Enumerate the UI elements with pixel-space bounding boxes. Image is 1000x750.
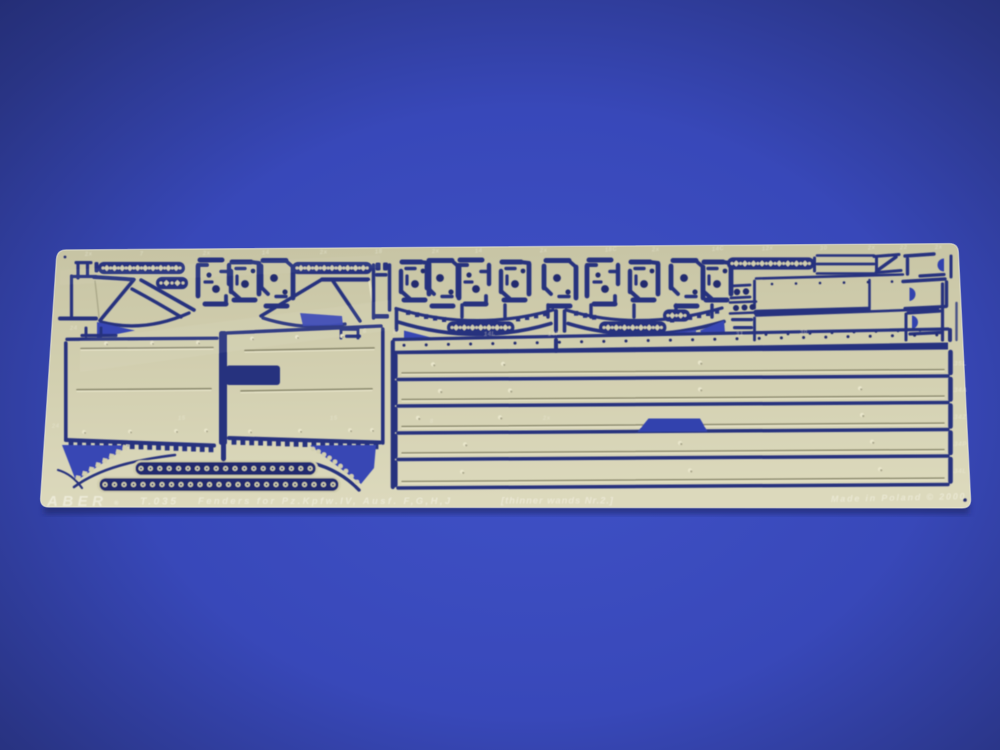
svg-text:34A: 34A bbox=[954, 387, 967, 394]
svg-text:2x: 2x bbox=[84, 251, 93, 258]
svg-text:2x: 2x bbox=[319, 249, 328, 256]
svg-text:34L: 34L bbox=[954, 468, 967, 475]
svg-text:2x: 2x bbox=[542, 415, 551, 422]
svg-text:24: 24 bbox=[51, 423, 60, 430]
svg-text:Fenders for Pz.Kpfw.IV, Ausf.: Fenders for Pz.Kpfw.IV, Ausf. F,G,H,J bbox=[198, 496, 453, 507]
svg-text:31: 31 bbox=[736, 331, 744, 338]
svg-text:15: 15 bbox=[178, 415, 186, 422]
svg-text:7: 7 bbox=[140, 251, 145, 257]
svg-text:24: 24 bbox=[69, 325, 78, 332]
svg-text:34Z: 34Z bbox=[954, 414, 967, 421]
svg-text:2x: 2x bbox=[539, 248, 548, 255]
svg-text:22: 22 bbox=[899, 245, 908, 252]
svg-text:14L: 14L bbox=[484, 331, 496, 338]
svg-text:2x: 2x bbox=[934, 244, 943, 251]
svg-text:14: 14 bbox=[475, 248, 483, 255]
svg-text:14: 14 bbox=[262, 250, 270, 257]
svg-text:ABER: ABER bbox=[46, 493, 108, 510]
svg-text:2x: 2x bbox=[867, 245, 876, 252]
svg-text:35L: 35L bbox=[954, 361, 967, 368]
svg-text:2x: 2x bbox=[431, 248, 440, 255]
svg-text:34P: 34P bbox=[954, 441, 967, 448]
svg-text:8: 8 bbox=[430, 419, 434, 425]
svg-text:15: 15 bbox=[330, 415, 338, 422]
svg-text:T.035: T.035 bbox=[140, 496, 179, 508]
svg-text:®: ® bbox=[114, 500, 119, 507]
svg-text:6x: 6x bbox=[393, 329, 401, 336]
svg-text:2x: 2x bbox=[651, 247, 660, 254]
svg-text:30: 30 bbox=[820, 245, 828, 252]
svg-text:14P: 14P bbox=[548, 331, 561, 338]
svg-text:18: 18 bbox=[375, 249, 383, 256]
svg-text:2x: 2x bbox=[202, 250, 211, 257]
svg-text:30: 30 bbox=[800, 329, 808, 336]
svg-text:12x: 12x bbox=[762, 245, 774, 252]
svg-text:[thinner wands Nr.2.]: [thinner wands Nr.2.] bbox=[500, 496, 614, 507]
